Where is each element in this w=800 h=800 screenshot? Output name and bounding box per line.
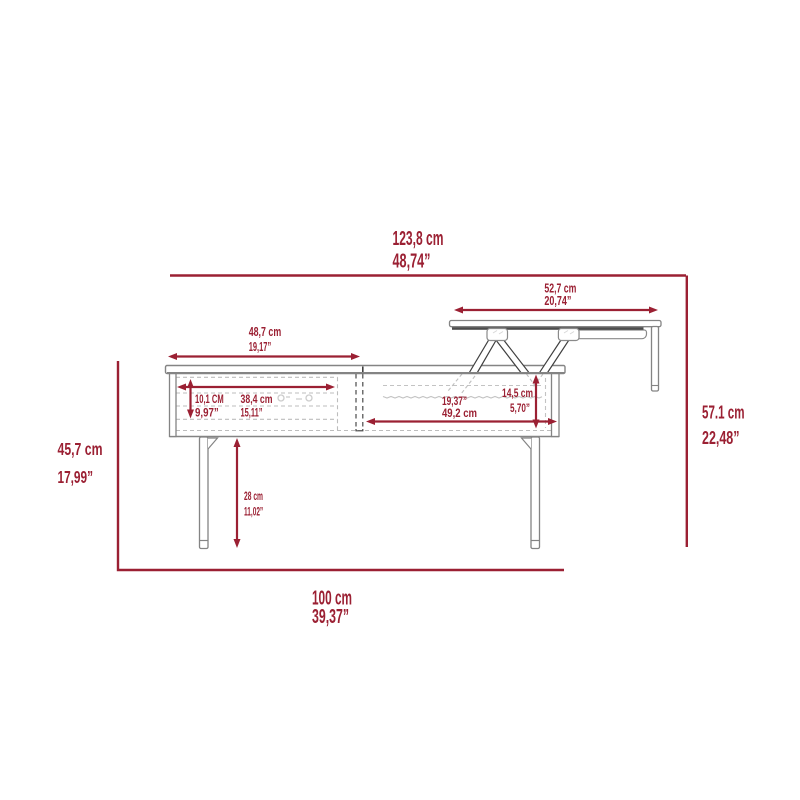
svg-text:15,11”: 15,11” xyxy=(241,408,263,420)
svg-text:14,5 cm: 14,5 cm xyxy=(502,388,533,400)
svg-text:57.1 cm: 57.1 cm xyxy=(702,403,745,423)
svg-text:48,74”: 48,74” xyxy=(393,250,431,273)
svg-text:48,7 cm: 48,7 cm xyxy=(249,324,282,339)
svg-text:17,99”: 17,99” xyxy=(58,467,94,487)
svg-text:38,4 cm: 38,4 cm xyxy=(241,394,273,406)
svg-text:49,2 cm: 49,2 cm xyxy=(442,408,477,420)
svg-text:20,74”: 20,74” xyxy=(544,293,571,308)
svg-text:19,17”: 19,17” xyxy=(249,339,271,354)
svg-text:123,8 cm: 123,8 cm xyxy=(393,227,444,250)
svg-text:19,37”: 19,37” xyxy=(442,396,467,408)
svg-text:5,70”: 5,70” xyxy=(510,403,530,415)
svg-text:28 cm: 28 cm xyxy=(244,491,263,503)
svg-text:10,1 CM: 10,1 CM xyxy=(195,394,224,406)
svg-text:9,97”: 9,97” xyxy=(195,408,219,420)
svg-text:11,02”: 11,02” xyxy=(244,506,263,518)
svg-text:22,48”: 22,48” xyxy=(702,428,740,448)
svg-text:39,37”: 39,37” xyxy=(312,605,349,628)
svg-text:45,7 cm: 45,7 cm xyxy=(58,439,103,459)
